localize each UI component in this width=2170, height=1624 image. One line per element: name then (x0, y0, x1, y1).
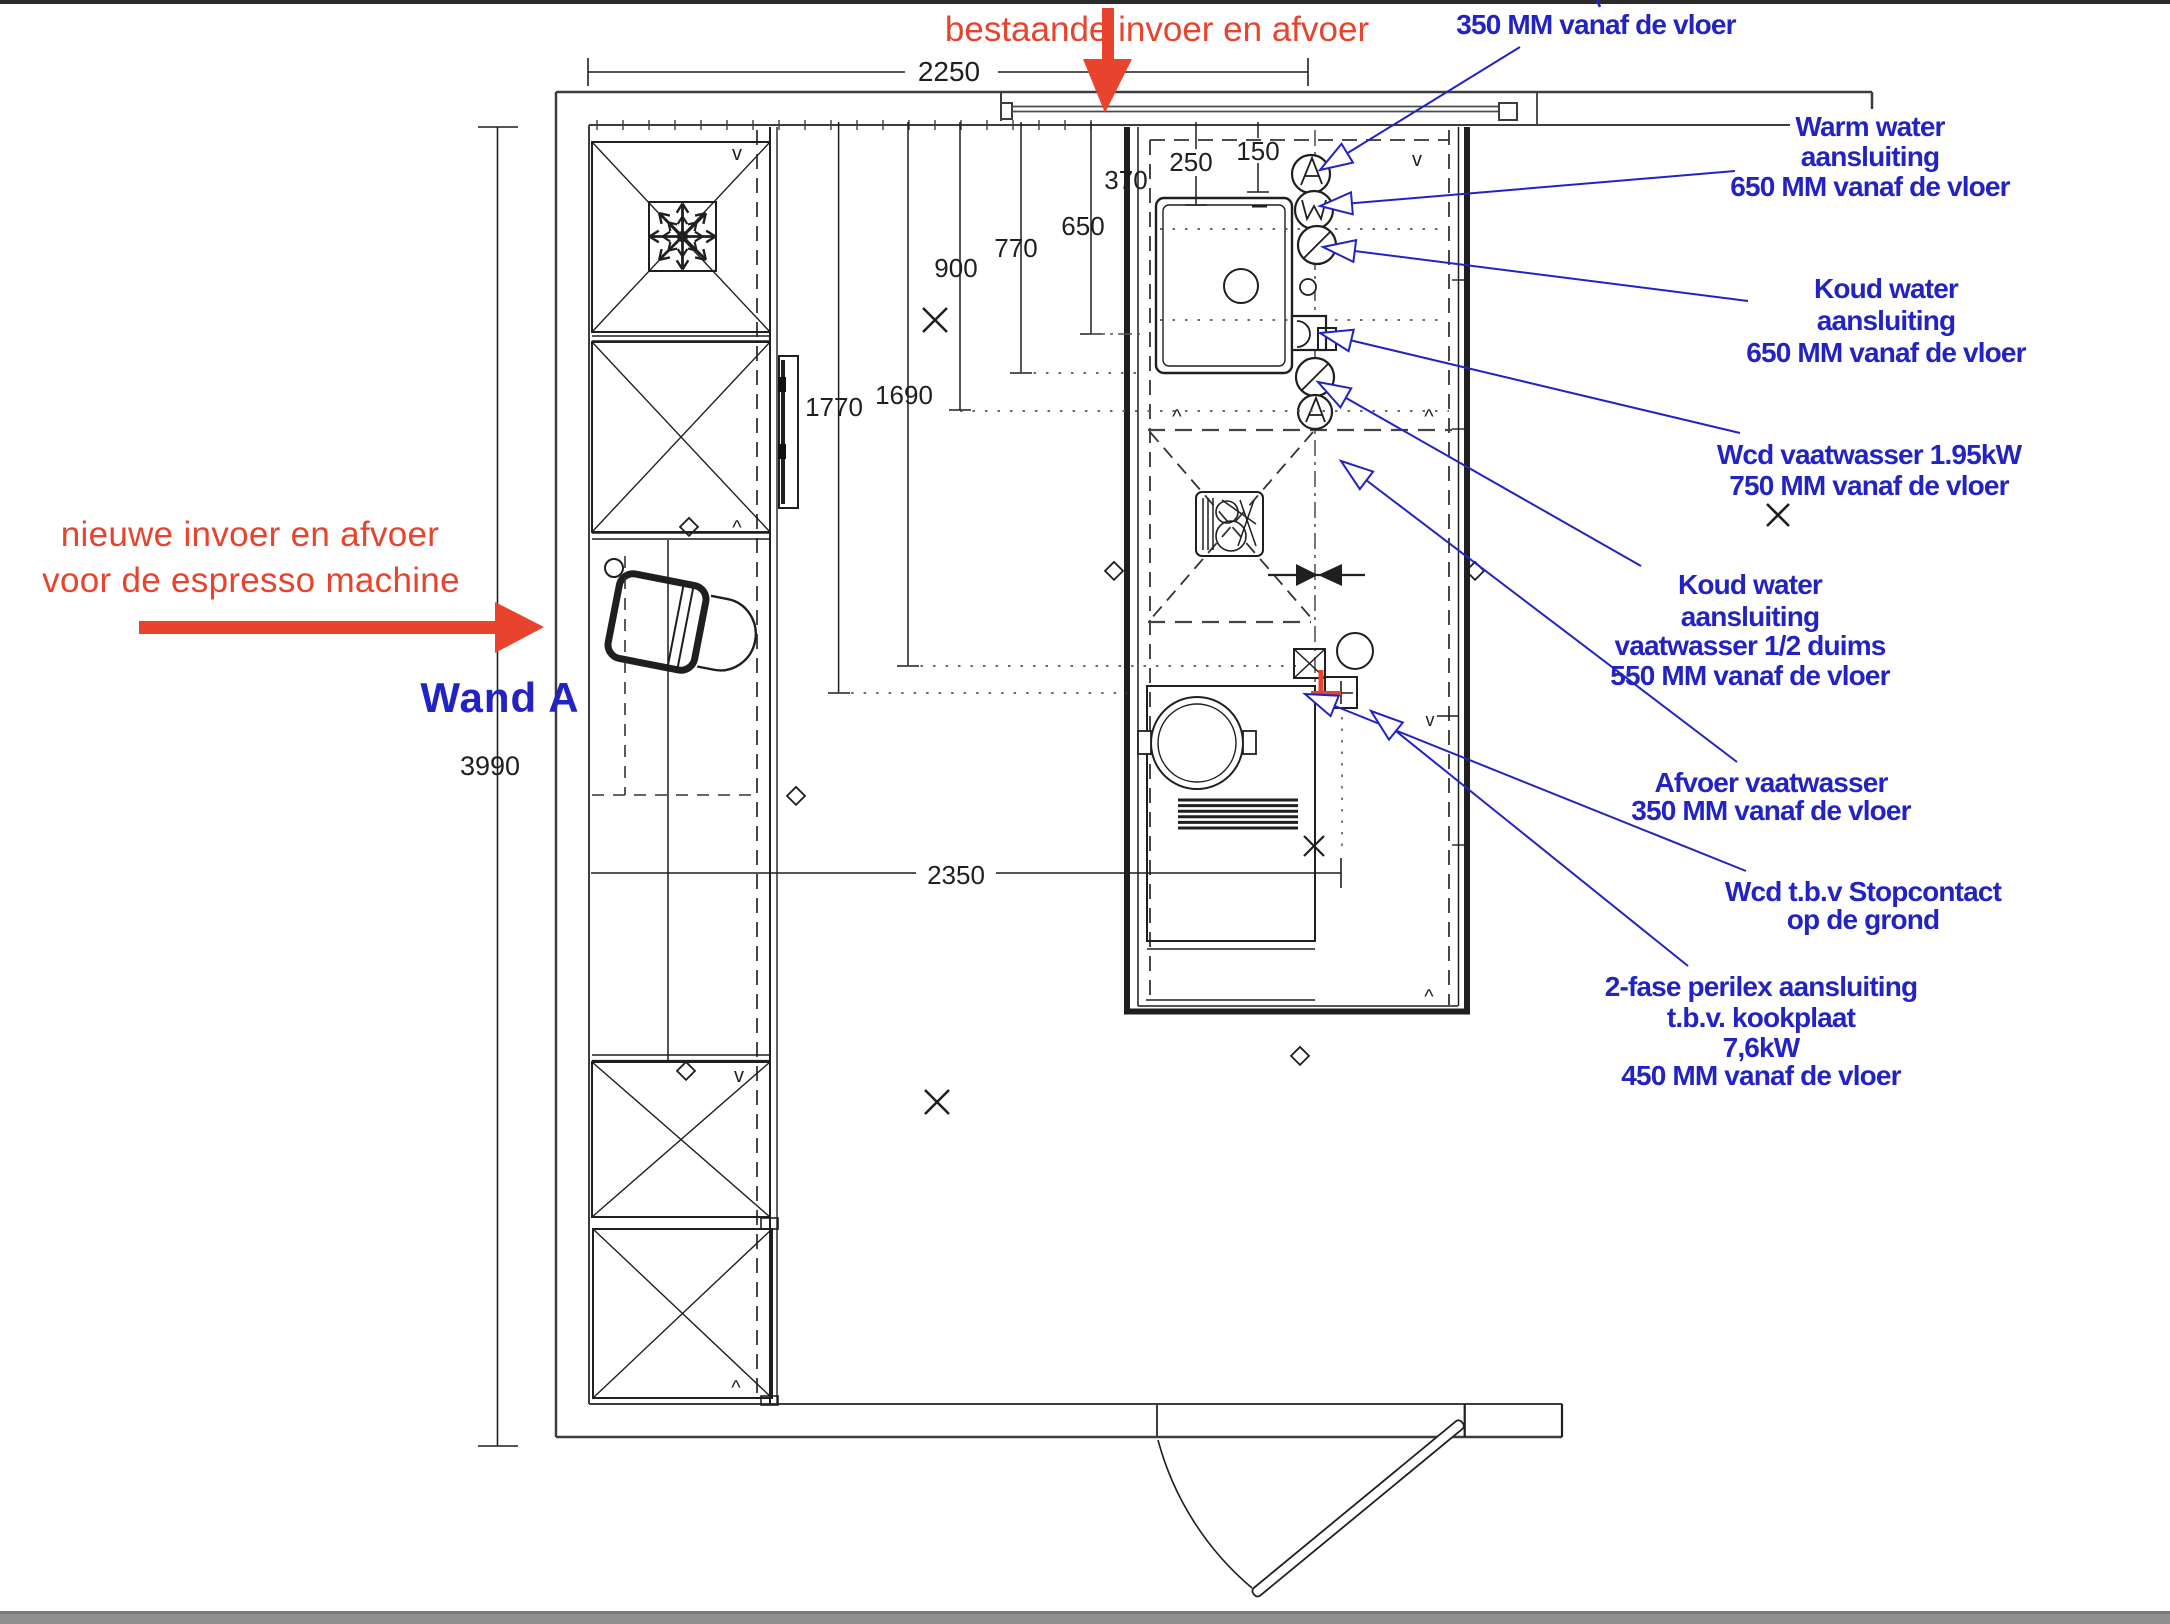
svg-text:Afvoer vaatwasser: Afvoer vaatwasser (1654, 767, 1888, 798)
svg-text:Wcd vaatwasser 1.95kW: Wcd vaatwasser 1.95kW (1717, 439, 2023, 470)
svg-text:aansluiting: aansluiting (1817, 305, 1955, 336)
svg-text:Wcd t.b.v Stopcontact: Wcd t.b.v Stopcontact (1725, 876, 2002, 907)
svg-text:Koud water: Koud water (1678, 569, 1823, 600)
svg-text:^: ^ (1172, 406, 1182, 428)
svg-text:^: ^ (1424, 406, 1434, 428)
svg-text:^: ^ (731, 1377, 741, 1399)
svg-text:^: ^ (1424, 986, 1434, 1008)
svg-text:^: ^ (732, 517, 742, 539)
svg-text:v: v (1412, 149, 1422, 171)
svg-text:650: 650 (1061, 211, 1104, 241)
svg-text:t.b.v. kookplaat: t.b.v. kookplaat (1667, 1002, 1856, 1033)
svg-text:770: 770 (994, 233, 1037, 263)
svg-text:v: v (1426, 710, 1435, 730)
svg-text:Wand A: Wand A (420, 674, 579, 721)
svg-text:aansluiting: aansluiting (1801, 141, 1939, 172)
svg-text:650 MM vanaf de vloer: 650 MM vanaf de vloer (1730, 171, 2010, 202)
svg-text:bestaande invoer en afvoer: bestaande invoer en afvoer (945, 10, 1370, 49)
svg-text:650 MM vanaf de vloer: 650 MM vanaf de vloer (1746, 337, 2026, 368)
svg-text:7,6kW: 7,6kW (1723, 1032, 1801, 1063)
svg-text:2350: 2350 (927, 860, 985, 890)
svg-text:Koud water: Koud water (1814, 273, 1959, 304)
svg-text:900: 900 (934, 253, 977, 283)
svg-text:150: 150 (1236, 136, 1279, 166)
svg-text:Warm water: Warm water (1795, 111, 1945, 142)
svg-text:250: 250 (1169, 147, 1212, 177)
svg-text:nieuwe invoer en afvoer: nieuwe invoer en afvoer (61, 515, 440, 554)
svg-text:2250: 2250 (918, 56, 980, 87)
svg-text:vaatwasser 1/2 duims: vaatwasser 1/2 duims (1615, 630, 1886, 661)
svg-text:op de grond: op de grond (1787, 904, 1939, 935)
svg-text:450 MM vanaf de vloer: 450 MM vanaf de vloer (1621, 1060, 1901, 1091)
svg-text:3990: 3990 (460, 751, 520, 781)
svg-text:v: v (734, 1065, 744, 1087)
svg-text:750 MM vanaf de vloer: 750 MM vanaf de vloer (1729, 470, 2009, 501)
svg-text:370: 370 (1104, 165, 1147, 195)
svg-text:voor de espresso machine: voor de espresso machine (42, 561, 460, 600)
svg-text:350 MM vanaf de vloer: 350 MM vanaf de vloer (1456, 9, 1736, 40)
svg-text:1770: 1770 (805, 392, 863, 422)
svg-text:550 MM vanaf de vloer: 550 MM vanaf de vloer (1610, 660, 1890, 691)
svg-text:2-fase perilex aansluiting: 2-fase perilex aansluiting (1605, 971, 1917, 1002)
svg-text:v: v (732, 143, 742, 165)
svg-text:aansluiting: aansluiting (1681, 601, 1819, 632)
svg-text:1690: 1690 (875, 380, 933, 410)
svg-text:350 MM vanaf de vloer: 350 MM vanaf de vloer (1631, 795, 1911, 826)
